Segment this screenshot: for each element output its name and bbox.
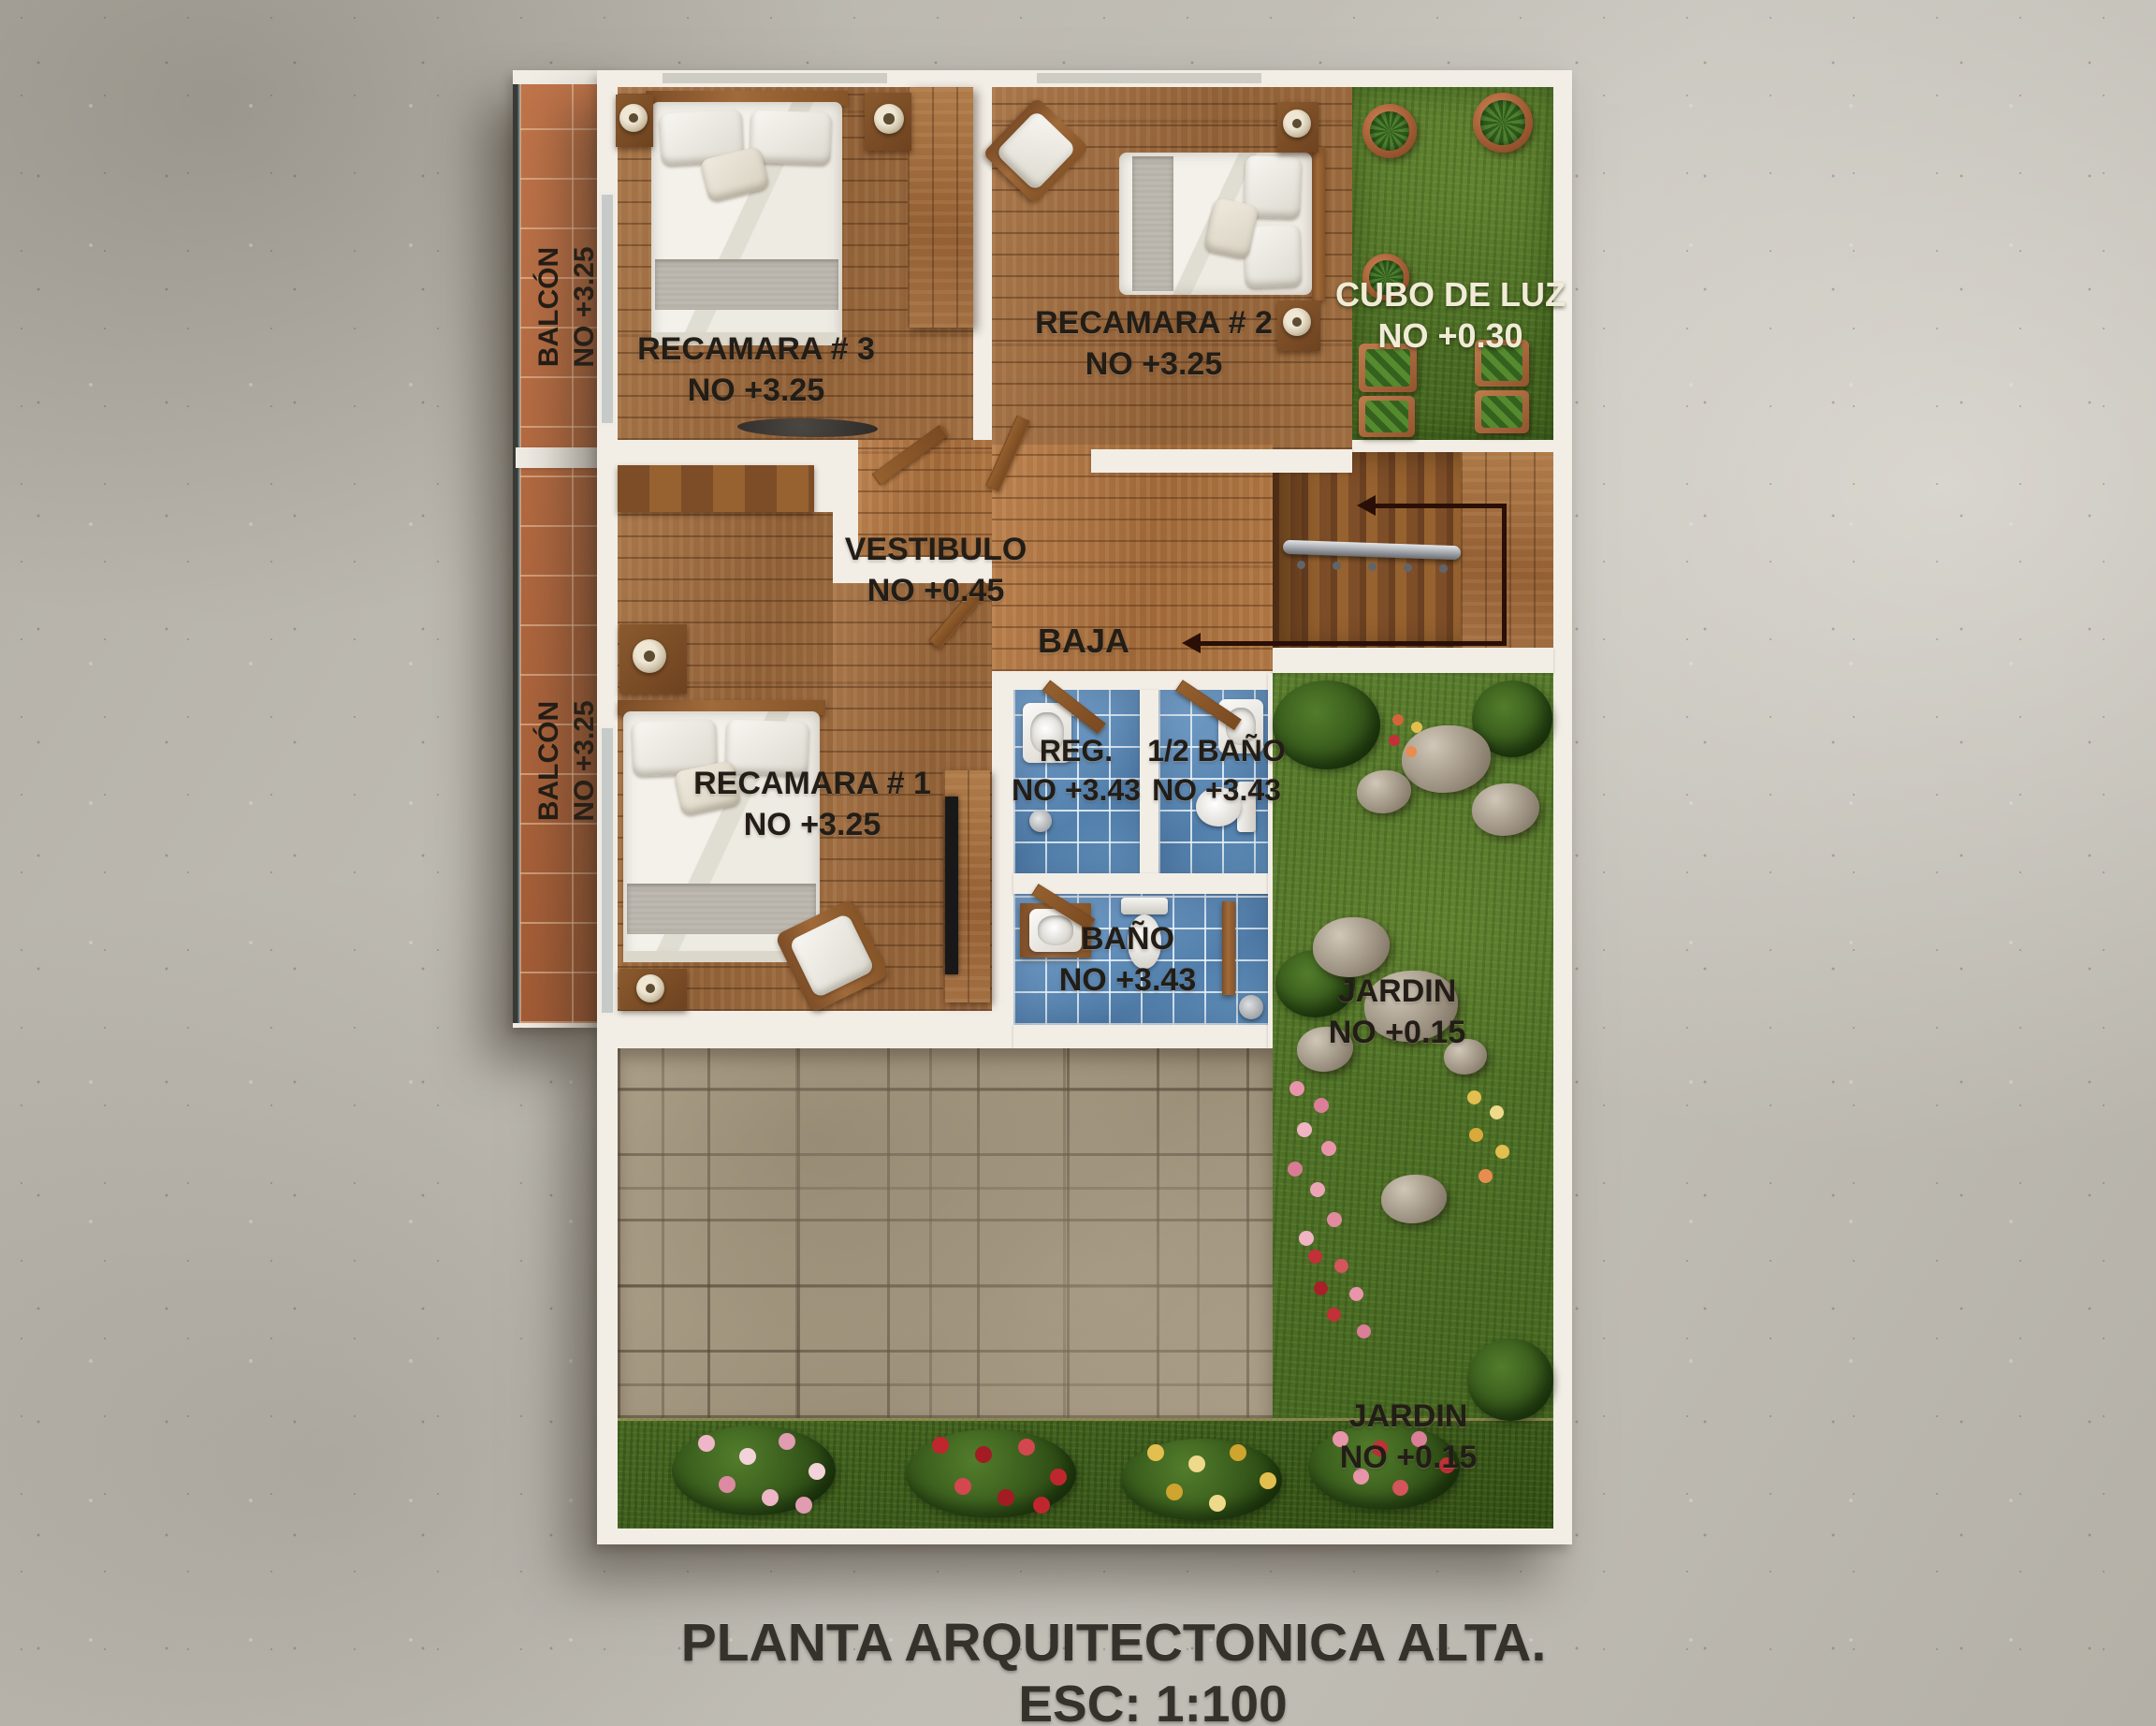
bathroom-mid-wall bbox=[1013, 873, 1268, 894]
floor-plan-screenshot: BALCÓN NO +3.25 BALCÓN NO +3.25 bbox=[0, 0, 2156, 1726]
baja-arrow-line bbox=[1201, 641, 1507, 646]
balcony-bottom-label: BALCÓN NO +3.25 bbox=[532, 700, 603, 821]
room-level: NO +3.43 bbox=[1147, 770, 1286, 810]
garden-right-label: JARDIN NO +0.15 bbox=[1329, 971, 1465, 1053]
balcony-glass-railing bbox=[513, 84, 520, 1023]
room-name: BALCÓN bbox=[532, 700, 567, 821]
room-name: VESTIBULO bbox=[845, 529, 1027, 570]
bed-blanket bbox=[655, 259, 838, 310]
bedroom2-label: RECAMARA # 2 NO +3.25 bbox=[1035, 302, 1273, 385]
plant-planter bbox=[1475, 390, 1529, 433]
room-level: NO +3.25 bbox=[637, 370, 875, 411]
window-strip bbox=[663, 73, 887, 83]
room-level: NO +0.15 bbox=[1340, 1437, 1477, 1478]
shower-room-label: REG. NO +3.43 bbox=[1012, 731, 1141, 810]
baja-label: BAJA bbox=[1038, 621, 1129, 662]
window-strip bbox=[1037, 73, 1261, 83]
bathroom-bottom-wall bbox=[1013, 1025, 1290, 1048]
stone-patio bbox=[618, 1048, 1273, 1418]
room-name: RECAMARA # 3 bbox=[637, 329, 875, 370]
flower-cluster-small bbox=[1392, 714, 1404, 725]
bedroom1-label: RECAMARA # 1 NO +3.25 bbox=[693, 763, 931, 845]
room-level: NO +3.43 bbox=[1059, 959, 1196, 1001]
shower-valve bbox=[1029, 810, 1052, 832]
vestibule-floor bbox=[992, 445, 1273, 671]
flower-cluster-pink bbox=[698, 1435, 715, 1452]
stair-arrow-line bbox=[1376, 504, 1507, 508]
rose-bush bbox=[1121, 1439, 1282, 1521]
garden-bush bbox=[1467, 1338, 1553, 1421]
room-level: NO +0.45 bbox=[845, 570, 1027, 611]
half-bath-label: 1/2 BAÑO NO +3.43 bbox=[1147, 731, 1286, 810]
lamp bbox=[1283, 308, 1311, 336]
lamp bbox=[633, 639, 666, 673]
room-name: JARDIN bbox=[1329, 971, 1465, 1012]
room-name: BAÑO bbox=[1059, 918, 1196, 959]
flower-cluster-pink bbox=[1289, 1081, 1304, 1096]
light-well-label: CUBO DE LUZ NO +0.30 bbox=[1335, 274, 1566, 357]
room-level: NO +3.25 bbox=[693, 804, 931, 845]
bed-headboard bbox=[1312, 147, 1325, 300]
bed-blanket bbox=[1132, 156, 1173, 291]
vestibule-label: VESTIBULO NO +0.45 bbox=[845, 529, 1027, 611]
bed-blanket bbox=[627, 884, 816, 934]
handrail-balusters bbox=[1297, 561, 1305, 569]
balcony-top-label: BALCÓN NO +3.25 bbox=[532, 246, 603, 367]
flower-cluster-mixed bbox=[1308, 1250, 1322, 1264]
bedroom3-closet bbox=[908, 87, 973, 328]
room-name: RECAMARA # 1 bbox=[693, 763, 931, 804]
stair-arrow-head-icon bbox=[1357, 495, 1376, 516]
baja-arrow-head-icon bbox=[1182, 633, 1201, 653]
drawing-title: PLANTA ARQUITECTONICA ALTA. bbox=[681, 1612, 1547, 1674]
room-name: BALCÓN bbox=[532, 246, 567, 367]
light-well-grass bbox=[1352, 87, 1553, 440]
plant-pot bbox=[1473, 93, 1533, 153]
house-block: RECAMARA # 3 NO +3.25 RECAMARA # 2 NO +3… bbox=[597, 70, 1572, 1544]
stairs-bottom-wall bbox=[1273, 648, 1553, 673]
room-name: RECAMARA # 2 bbox=[1035, 302, 1273, 344]
shower-bench bbox=[1222, 901, 1235, 995]
bedroom2-bottom-wall bbox=[1091, 449, 1352, 473]
garden-bottom-label: JARDIN NO +0.15 bbox=[1340, 1396, 1477, 1478]
bedroom1-wardrobe bbox=[618, 465, 814, 512]
plant-planter bbox=[1359, 396, 1415, 437]
room-name: CUBO DE LUZ bbox=[1335, 274, 1566, 315]
balcony-door-glazing bbox=[599, 192, 616, 426]
room-level: NO +0.30 bbox=[1335, 315, 1566, 357]
shower-head bbox=[1239, 995, 1263, 1019]
stair-arrow-line bbox=[1502, 504, 1507, 646]
lamp bbox=[619, 104, 648, 132]
lamp bbox=[874, 104, 904, 134]
floor-plan: BALCÓN NO +3.25 BALCÓN NO +3.25 bbox=[501, 58, 1586, 1556]
plant-pot bbox=[1362, 104, 1417, 158]
room-level: NO +3.25 bbox=[1035, 344, 1273, 385]
room-name: JARDIN bbox=[1340, 1396, 1477, 1437]
room-level: NO +3.43 bbox=[1012, 770, 1141, 810]
room-name: REG. bbox=[1012, 731, 1141, 770]
bathroom-label: BAÑO NO +3.43 bbox=[1059, 918, 1196, 1001]
flower-cluster-yellow bbox=[1147, 1444, 1164, 1461]
rose-bush bbox=[672, 1426, 836, 1515]
stair-landing bbox=[1461, 452, 1553, 651]
balcony-door-glazing bbox=[599, 725, 616, 1016]
flower-cluster-yellow bbox=[1467, 1090, 1481, 1104]
bedroom3-bed bbox=[646, 91, 848, 357]
tv-screen bbox=[945, 797, 958, 974]
bedroom3-label: RECAMARA # 3 NO +3.25 bbox=[637, 329, 875, 411]
bedroom2-bed bbox=[1119, 147, 1325, 300]
garden-bush bbox=[1273, 680, 1380, 769]
room-name: 1/2 BAÑO bbox=[1147, 731, 1286, 770]
flower-cluster-red bbox=[932, 1437, 949, 1454]
lamp bbox=[1283, 110, 1311, 138]
drawing-scale: ESC: 1:100 bbox=[1018, 1674, 1287, 1726]
lamp bbox=[636, 974, 664, 1002]
room-level: NO +0.15 bbox=[1329, 1012, 1465, 1053]
